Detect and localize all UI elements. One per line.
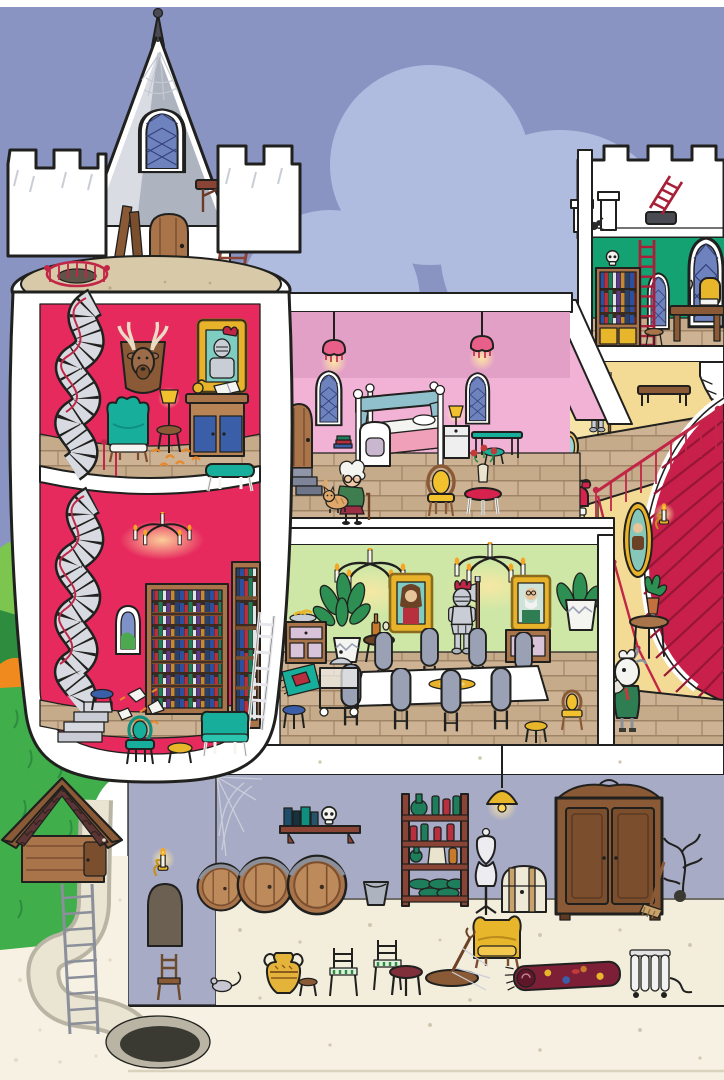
lady-portrait (390, 574, 432, 632)
bedroom-window-right (466, 373, 489, 423)
fruit-bowl (290, 614, 316, 622)
writing-desk (186, 380, 248, 456)
wingback-armchair (107, 397, 148, 462)
bedroom-roof-band (266, 293, 572, 312)
turret-window (140, 109, 184, 172)
top-margin (0, 0, 724, 7)
barrel-3 (288, 856, 346, 914)
treasure-chest (502, 866, 546, 912)
roof-hatch (646, 212, 676, 224)
rolled-carpet (504, 961, 620, 991)
bedroom-window-left (316, 371, 341, 425)
wardrobe (556, 780, 662, 920)
gentleman-portrait (512, 576, 550, 630)
illustration-canvas (0, 0, 724, 1080)
nightstand-with-lamp (444, 404, 469, 458)
arrow-slit-window (116, 606, 140, 654)
dining-hall (266, 528, 614, 745)
open-book (700, 299, 718, 305)
bucket (364, 882, 388, 905)
barrel-2 (238, 858, 292, 912)
gothic-window-small (648, 273, 669, 329)
dining-hall-divider (598, 535, 614, 745)
arched-doorway (148, 884, 182, 946)
bedroom (266, 293, 614, 545)
book-stack (334, 436, 352, 448)
attic-section (571, 146, 724, 362)
oval-portrait (624, 503, 652, 577)
dining-ceiling-band (266, 528, 614, 545)
tall-bookcase (146, 584, 228, 714)
castle-cutaway-illustration (0, 0, 724, 1080)
